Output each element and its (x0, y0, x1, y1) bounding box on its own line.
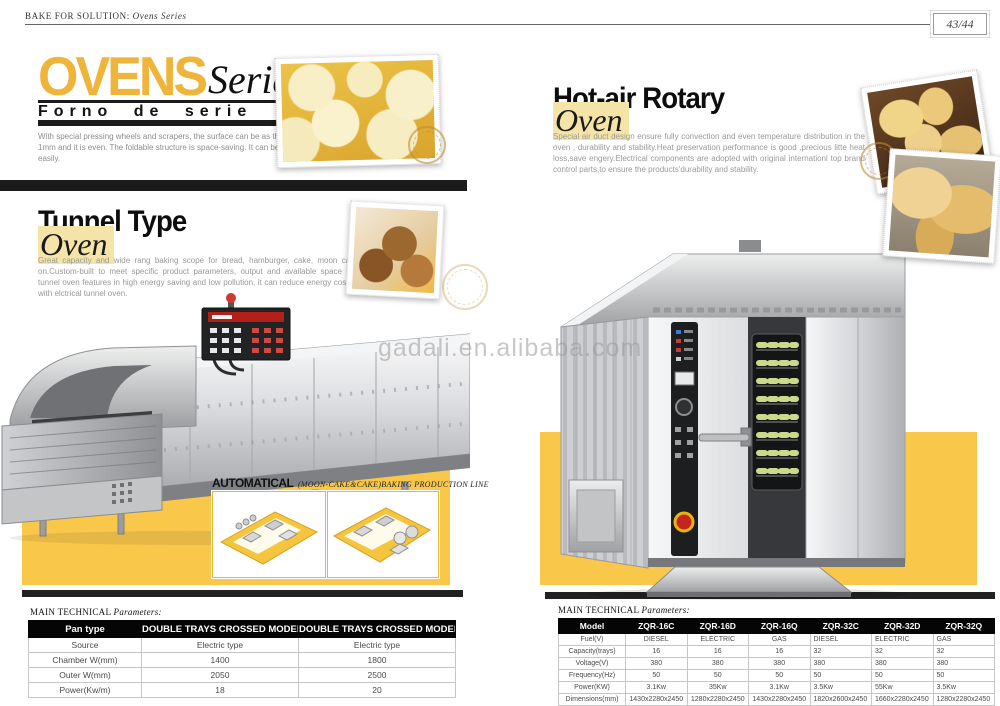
column-header: ZQR-16Q (749, 619, 811, 634)
header-brand-label: BAKE FOR SOLUTION: (25, 11, 130, 21)
cell: 50 (872, 670, 934, 682)
cell: 380 (933, 658, 995, 670)
row-label: Frequency(Hz) (559, 670, 626, 682)
automatical-caption-row: AUTOMATICAL (MOON-CAKE&CAKE)BAKING PRODU… (212, 474, 489, 492)
cell: 50 (749, 670, 811, 682)
cell: 16 (626, 646, 688, 658)
rotary-table-title: MAIN TECHNICAL Parameters: (558, 605, 690, 615)
cell: Electric type (299, 638, 456, 653)
cell: 1280x2280x2450 (933, 694, 995, 706)
rotary-spec-table-wrap: ModelZQR-16CZQR-16DZQR-16QZQR-32CZQR-32D… (558, 618, 995, 706)
row-label: Voltage(V) (559, 658, 626, 670)
table-header-row: Pan typeDOUBLE TRAYS CROSSED MODELDOUBLE… (29, 621, 456, 638)
row-label: Fuel(V) (559, 634, 626, 646)
cell: ELECTRIC (687, 634, 749, 646)
cell: 35Kw (687, 682, 749, 694)
cell: 1430x2280x2450 (626, 694, 688, 706)
cell: GAS (749, 634, 811, 646)
table-row: Dimensions(mm)1430x2280x24501280x2280x24… (559, 694, 995, 706)
series-title: OVENS (38, 50, 205, 105)
column-header: ZQR-16C (626, 619, 688, 634)
row-label: Capacity(trays) (559, 646, 626, 658)
door-window (752, 334, 802, 490)
control-strip (671, 322, 698, 556)
header-brand: BAKE FOR SOLUTION: Ovens Series (25, 11, 187, 21)
row-label: Power(Kw/m) (29, 683, 142, 698)
cell: 380 (872, 658, 934, 670)
gold-seal-icon (408, 126, 446, 164)
loaves-photo (882, 148, 1000, 264)
cell: 1430x2280x2450 (749, 694, 811, 706)
cell: 50 (933, 670, 995, 682)
cell: 380 (749, 658, 811, 670)
cell: 32 (933, 646, 995, 658)
cell: 16 (687, 646, 749, 658)
cell: 50 (810, 670, 872, 682)
column-header: ZQR-16D (687, 619, 749, 634)
column-header: DOUBLE TRAYS CROSSED MODEL (299, 621, 456, 638)
page-number-box: 43/44 (933, 13, 987, 35)
table-row: Power(KW)3.1Kw35Kw3.1Kw3.5Kw55Kw3.5Kw (559, 682, 995, 694)
automatical-caption: (MOON-CAKE&CAKE)BAKING PRODUCTION LINE (298, 480, 489, 489)
cell: 380 (626, 658, 688, 670)
column-header: Pan type (29, 621, 142, 638)
cell: DIESEL (626, 634, 688, 646)
cell: 55Kw (872, 682, 934, 694)
tunnel-spec-table-wrap: Pan typeDOUBLE TRAYS CROSSED MODELDOUBLE… (28, 620, 456, 698)
cell: 32 (810, 646, 872, 658)
production-line-diagram-2 (327, 491, 439, 578)
series-intro: With special pressing wheels and scraper… (38, 131, 312, 164)
cell: 1660x2280x2450 (872, 694, 934, 706)
tunnel-table-title: MAIN TECHNICAL Parameters: (30, 607, 162, 617)
series-subtitle: Forno de serie (38, 103, 310, 121)
header-rule (25, 24, 935, 25)
cell: 3.1Kw (749, 682, 811, 694)
column-header: Model (559, 619, 626, 634)
cell: 18 (142, 683, 299, 698)
column-header: ZQR-32D (872, 619, 934, 634)
cell: 380 (687, 658, 749, 670)
mooncake-image (352, 207, 438, 293)
cell: 1800 (299, 653, 456, 668)
tunnel-bottom-bar (22, 590, 463, 597)
table-row: Outer W(mm)20502500 (29, 668, 456, 683)
cell: 2050 (142, 668, 299, 683)
cell: 50 (687, 670, 749, 682)
cell: 2500 (299, 668, 456, 683)
cell: 16 (749, 646, 811, 658)
table-row: SourceElectric typeElectric type (29, 638, 456, 653)
watermark: gadali.en.alibaba.com (378, 334, 642, 363)
cell: 3.5Kw (933, 682, 995, 694)
header-series-label: Ovens Series (133, 11, 187, 21)
cell: Electric type (142, 638, 299, 653)
cell: 1280x2280x2450 (687, 694, 749, 706)
row-label: Chamber W(mm) (29, 653, 142, 668)
column-header: DOUBLE TRAYS CROSSED MODEL (142, 621, 299, 638)
side-box (569, 480, 623, 552)
rotary-spec-table: ModelZQR-16CZQR-16DZQR-16QZQR-32CZQR-32D… (558, 618, 995, 706)
page-number: 43/44 (946, 17, 973, 32)
table-row: Capacity(trays)161616323232 (559, 646, 995, 658)
row-label: Dimensions(mm) (559, 694, 626, 706)
catalog-page: BAKE FOR SOLUTION: Ovens Series 43/44 OV… (0, 0, 1000, 706)
cell: 3.1Kw (626, 682, 688, 694)
cell: 20 (299, 683, 456, 698)
rotary-description: Special air duct design ensure fully con… (553, 131, 865, 175)
column-header: ZQR-32C (810, 619, 872, 634)
cell: 3.5Kw (810, 682, 872, 694)
cell: DIESEL (810, 634, 872, 646)
table-row: Power(Kw/m)1820 (29, 683, 456, 698)
table-header-row: ModelZQR-16CZQR-16DZQR-16QZQR-32CZQR-32D… (559, 619, 995, 634)
section-divider-bar (0, 180, 467, 191)
row-label: Source (29, 638, 142, 653)
cell: 1820x2600x2450 (810, 694, 872, 706)
cell: 1400 (142, 653, 299, 668)
table-row: Chamber W(mm)14001800 (29, 653, 456, 668)
cell: GAS (933, 634, 995, 646)
column-header: ZQR-32Q (933, 619, 995, 634)
cell: 380 (810, 658, 872, 670)
mooncake-photo (346, 201, 445, 300)
tunnel-spec-table: Pan typeDOUBLE TRAYS CROSSED MODELDOUBLE… (28, 620, 456, 698)
title-rule-bottom (38, 120, 310, 126)
production-line-diagram-1 (212, 491, 326, 578)
cell: 32 (872, 646, 934, 658)
automatical-label: AUTOMATICAL (212, 476, 293, 490)
table-row: Frequency(Hz)505050505050 (559, 670, 995, 682)
cell: ELECTRIC (872, 634, 934, 646)
loaves-image (889, 155, 995, 258)
table-row: Fuel(V)DIESELELECTRICGASDIESELELECTRICGA… (559, 634, 995, 646)
rotary-oven-illustration (553, 222, 923, 602)
cell: 50 (626, 670, 688, 682)
table-row: Voltage(V)380380380380380380 (559, 658, 995, 670)
row-label: Outer W(mm) (29, 668, 142, 683)
row-label: Power(KW) (559, 682, 626, 694)
